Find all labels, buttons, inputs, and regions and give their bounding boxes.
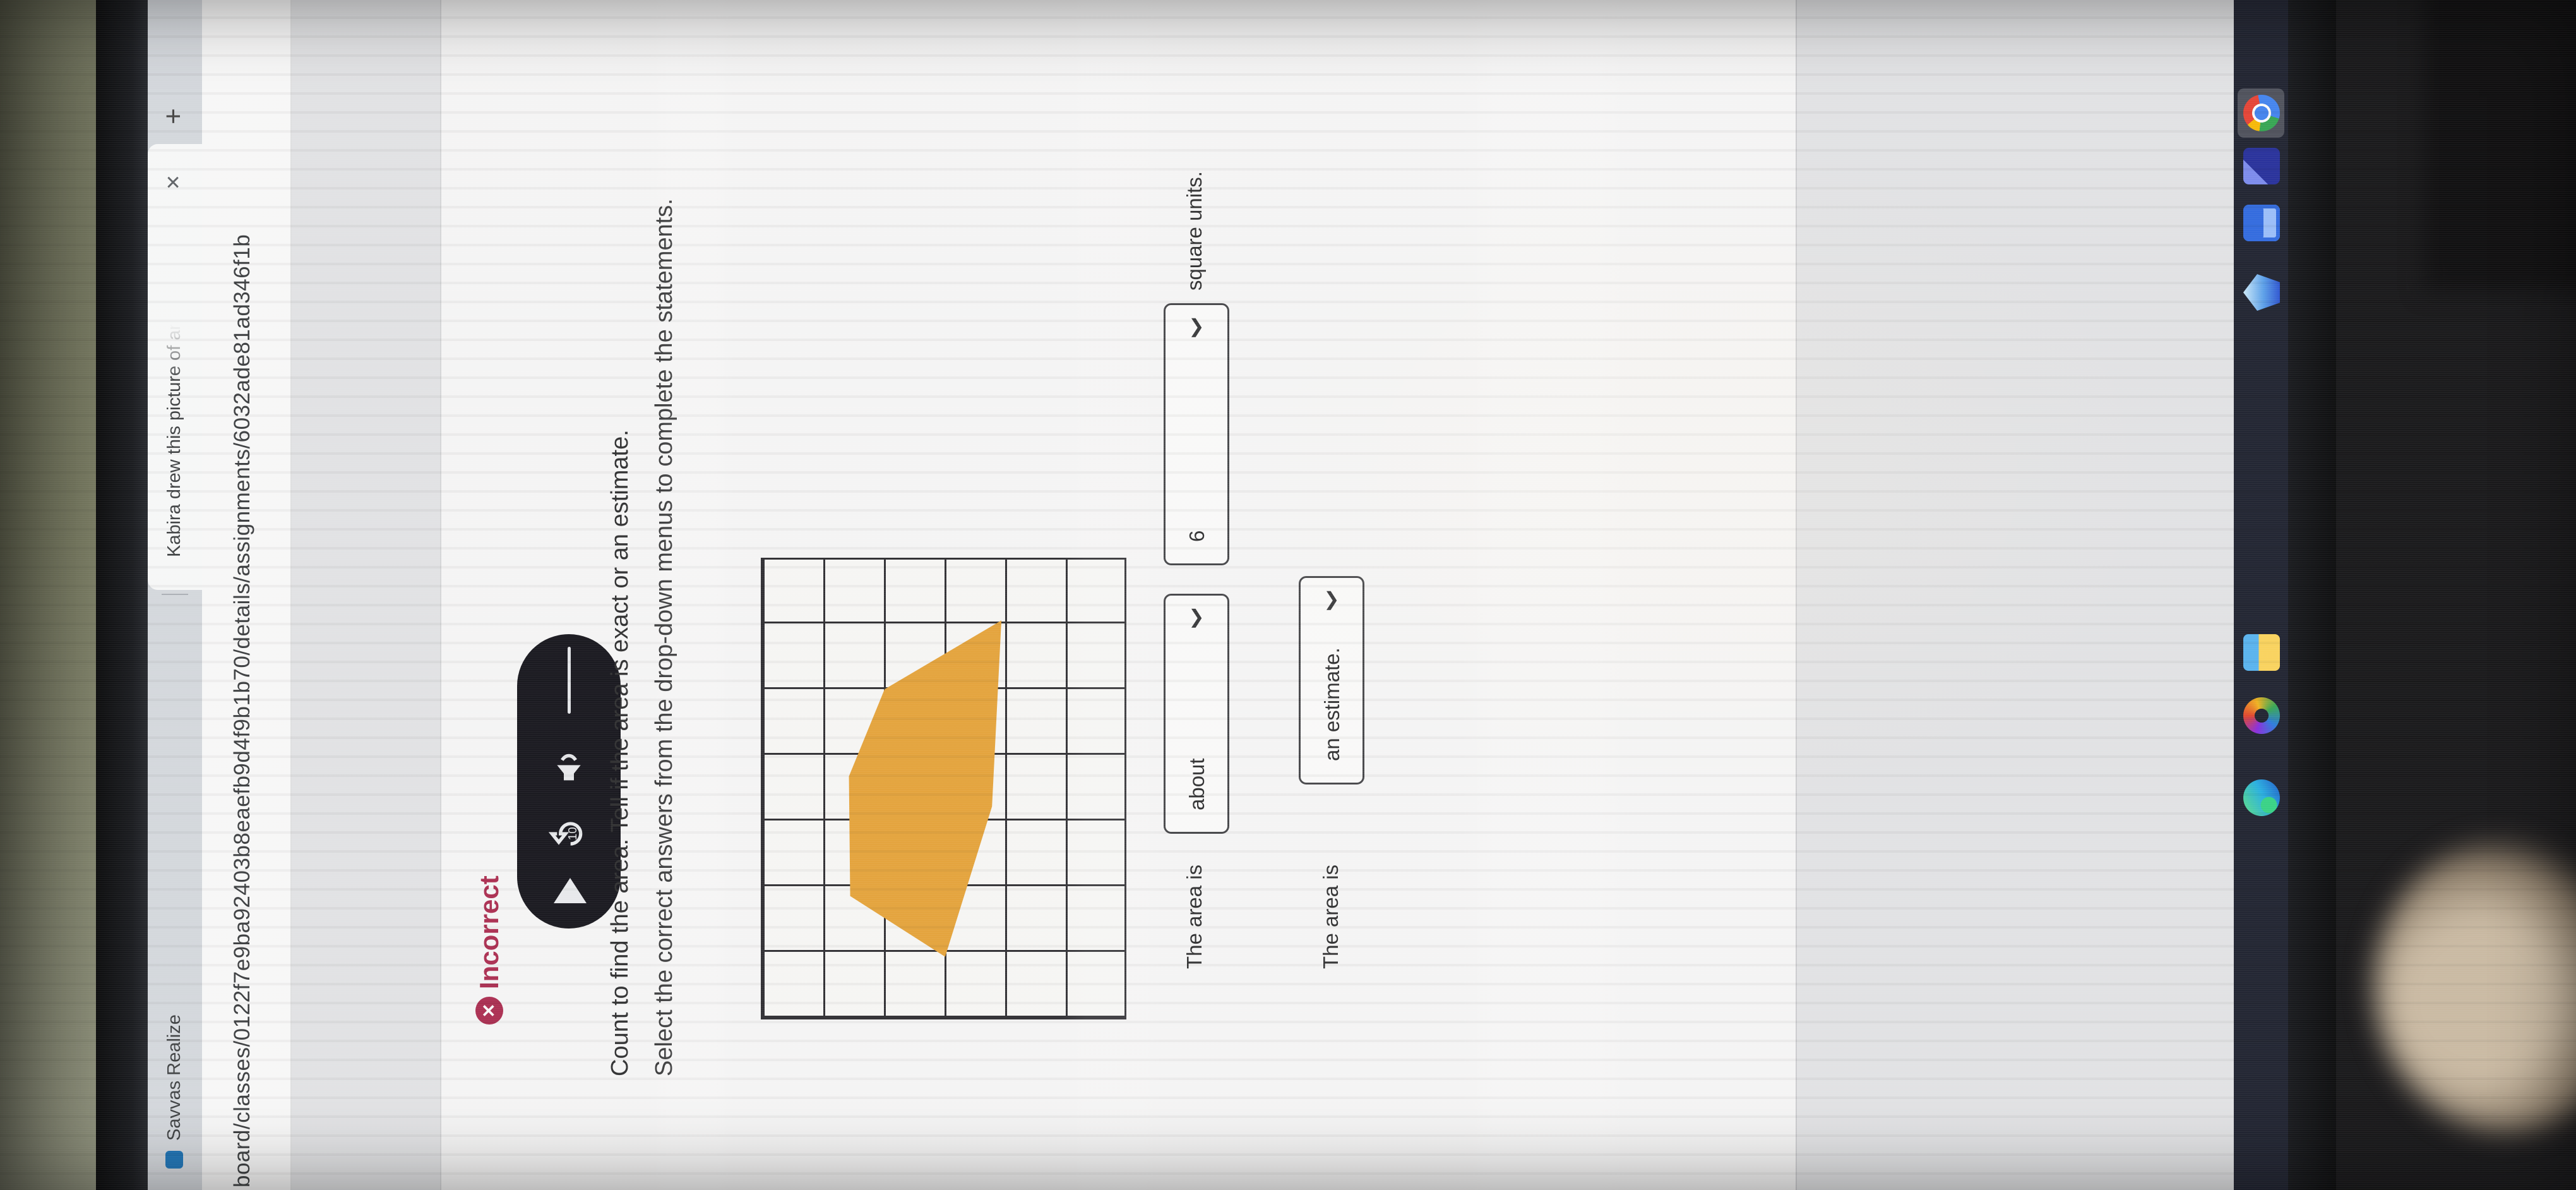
volume-slider[interactable] xyxy=(568,647,571,714)
question-line-1: Count to find the area. Tell if the area… xyxy=(607,430,634,1076)
dropdown-value: an estimate. xyxy=(1301,647,1364,761)
new-tab-button[interactable]: + xyxy=(157,99,192,134)
play-icon[interactable] xyxy=(554,878,587,903)
edge-icon[interactable] xyxy=(2243,779,2280,816)
question-line-2: Select the correct answers from the drop… xyxy=(651,198,678,1076)
chevron-down-icon: ❯ xyxy=(1188,296,1204,358)
feedback-status: Incorrect xyxy=(474,875,504,989)
teams-icon[interactable] xyxy=(2243,148,2280,184)
address-bar[interactable]: board/classes/0122f7e9ba92403b8eaefb9d4f… xyxy=(230,234,255,1187)
speaker-icon[interactable] xyxy=(549,747,589,787)
audio-player: 10 xyxy=(517,634,621,929)
tab-assignment[interactable]: Kabira drew this picture of an ✕ xyxy=(148,144,202,590)
statement-1-prefix: The area is xyxy=(1183,865,1207,969)
replay-10-icon[interactable]: 10 xyxy=(549,814,589,854)
dropdown-value: about xyxy=(1166,758,1229,810)
x-circle-icon: ✕ xyxy=(475,997,503,1025)
dark-furniture xyxy=(2424,0,2576,291)
chevron-down-icon: ❯ xyxy=(1323,569,1339,631)
dropdown-value: 6 xyxy=(1166,531,1229,542)
area-grid xyxy=(761,558,1126,1019)
statement-2-prefix: The area is xyxy=(1319,865,1343,969)
tab-divider xyxy=(162,594,188,595)
ring-icon[interactable] xyxy=(2243,697,2280,734)
tab-savvas-realize[interactable]: Savvas Realize xyxy=(148,594,202,1190)
photo-of-screen: Savvas Realize Kabira drew this picture … xyxy=(0,0,2576,1190)
monitor-bezel xyxy=(2288,0,2336,1190)
file-explorer-icon[interactable] xyxy=(2243,634,2280,671)
savvas-favicon-icon xyxy=(165,1151,183,1169)
dropdown-exact-or-about[interactable]: about ❯ xyxy=(1164,594,1229,834)
browser-tab-strip: Savvas Realize Kabira drew this picture … xyxy=(148,0,202,1190)
blue-app-icon[interactable] xyxy=(2243,205,2280,241)
chevron-down-icon: ❯ xyxy=(1188,587,1204,649)
tab-title: Savvas Realize xyxy=(164,1014,185,1141)
chrome-icon[interactable] xyxy=(2243,95,2280,131)
monitor-bezel xyxy=(96,0,148,1190)
svg-text:10: 10 xyxy=(566,827,579,840)
shaded-shape xyxy=(763,560,1124,1018)
tab-title: Kabira drew this picture of an xyxy=(164,320,185,557)
browser-toolbar: board/classes/0122f7e9ba92403b8eaefb9d4f… xyxy=(202,0,292,1190)
dropdown-exact-or-estimate[interactable]: an estimate. ❯ xyxy=(1299,576,1364,784)
statement-1-suffix: square units. xyxy=(1183,171,1207,291)
dropdown-area-number[interactable]: 6 ❯ xyxy=(1164,303,1229,565)
page-background: ✕ Incorrect 10 Count to find the are xyxy=(292,0,2234,1190)
assignment-card: ✕ Incorrect 10 Count to find the are xyxy=(440,0,1797,1190)
screen: Savvas Realize Kabira drew this picture … xyxy=(0,0,2336,1190)
close-icon[interactable]: ✕ xyxy=(163,174,186,190)
wall-background xyxy=(0,0,96,1190)
